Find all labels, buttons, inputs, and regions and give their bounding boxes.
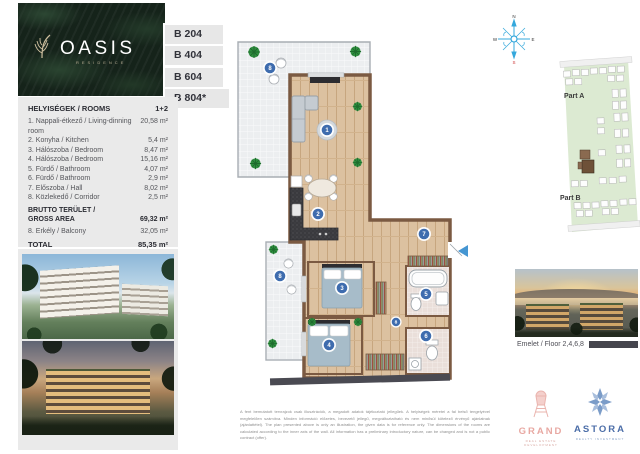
room-badge-hall: 7 bbox=[417, 227, 431, 241]
table-row: 7. Előszoba / Hall8,02 m² bbox=[28, 184, 168, 194]
snowflake-icon bbox=[587, 404, 613, 421]
astora-logo-tagline: REALTY INVESTMENT bbox=[570, 437, 630, 441]
building-block bbox=[40, 266, 119, 320]
disclaimer-text: A fent bemutatott tervrajzok csak illusz… bbox=[240, 409, 490, 442]
table-row: 6. Fürdő / Bathroom2,9 m² bbox=[28, 174, 168, 184]
balcony-chair bbox=[287, 285, 296, 294]
total-row: TOTAL 85,35 m² bbox=[28, 240, 168, 249]
unit-tag-b604: B 604 bbox=[165, 68, 223, 87]
building-rendering-sunset bbox=[22, 341, 174, 435]
building-block bbox=[526, 304, 569, 330]
table-row: 3. Hálószoba / Bedroom8,47 m² bbox=[28, 146, 168, 156]
rooms-header-right: 1+2 bbox=[155, 104, 168, 113]
room-badge-bathroom-a: 5 bbox=[419, 287, 433, 301]
svg-text:8: 8 bbox=[395, 320, 398, 326]
svg-text:N: N bbox=[512, 14, 515, 19]
table-row: 2. Konyha / Kitchen5,4 m² bbox=[28, 136, 168, 146]
brochure-page: OASIS RESIDENCE B 204 B 404 B 604 B 804*… bbox=[0, 0, 640, 454]
grand-logo-name: GRAND bbox=[511, 426, 571, 437]
room-badge-terrace: 8 bbox=[263, 61, 277, 75]
rooms-table: HELYISÉGEK / ROOMS 1+2 1. Nappali-étkező… bbox=[18, 97, 178, 247]
entrance-arrow-icon bbox=[458, 245, 468, 257]
leaf-icon bbox=[31, 33, 53, 64]
part-b-label: Part B bbox=[560, 195, 581, 202]
floor-caption: Emelet / Floor 2,4,6,8 bbox=[517, 340, 638, 349]
gross-area-row: BRUTTO TERÜLET /GROSS AREA 69,32 m² bbox=[28, 206, 168, 224]
wardrobe bbox=[366, 354, 404, 370]
room-badge-living: 1 bbox=[320, 123, 334, 137]
sink bbox=[436, 292, 448, 305]
svg-text:E: E bbox=[531, 37, 534, 42]
building-block bbox=[122, 283, 168, 315]
svg-text:W: W bbox=[493, 37, 498, 42]
room-badge-bedroom-a: 3 bbox=[335, 281, 349, 295]
part-a-label: Part A bbox=[564, 93, 584, 100]
building-block bbox=[580, 303, 623, 330]
building-rendering-day bbox=[22, 254, 174, 339]
rooms-table-header: HELYISÉGEK / ROOMS 1+2 bbox=[28, 104, 168, 113]
terrace-chair bbox=[276, 58, 286, 68]
toilet bbox=[426, 340, 438, 360]
terrace-chair bbox=[269, 74, 279, 84]
wardrobe bbox=[376, 282, 386, 314]
brand-name: OASIS bbox=[60, 38, 136, 60]
lake bbox=[515, 298, 638, 305]
table-row: 4. Hálószoba / Bedroom15,16 m² bbox=[28, 155, 168, 165]
brand-header: OASIS RESIDENCE bbox=[18, 3, 165, 96]
astora-logo-name: ASTORA bbox=[570, 424, 630, 435]
table-row: 1. Nappali-étkező / Living-dinning room2… bbox=[28, 117, 168, 136]
tv-cabinet bbox=[310, 77, 340, 83]
wardrobe bbox=[408, 256, 448, 266]
compass-icon: N E W S bbox=[492, 12, 536, 66]
room-badge-corridor: 8 bbox=[390, 316, 401, 327]
svg-text:S: S bbox=[512, 60, 515, 65]
building-block bbox=[46, 369, 149, 414]
table-row: 8. Közlekedő / Corridor2,5 m² bbox=[28, 193, 168, 203]
aerial-rendering bbox=[515, 269, 638, 337]
table-row: 5. Fürdő / Bathroom4,07 m² bbox=[28, 165, 168, 175]
room-badge-side-balcony: 8 bbox=[273, 269, 287, 283]
room-badge-bedroom-b: 4 bbox=[322, 338, 336, 352]
grand-logo: GRAND REAL ESTATE DEVELOPMENT bbox=[511, 387, 571, 447]
floor-caption-text: Emelet / Floor 2,4,6,8 bbox=[517, 341, 584, 348]
site-plan-map: Part A Part B bbox=[552, 56, 640, 234]
caption-bar bbox=[589, 341, 638, 348]
tower-icon bbox=[529, 406, 553, 423]
room-badge-bathroom-b: 6 bbox=[419, 329, 433, 343]
bathtub bbox=[409, 270, 447, 287]
room-badge-kitchen: 2 bbox=[311, 207, 325, 221]
brand-subtitle: RESIDENCE bbox=[76, 60, 126, 65]
grand-logo-tagline: REAL ESTATE DEVELOPMENT bbox=[511, 439, 571, 447]
balcony-chair bbox=[284, 259, 293, 268]
rooms-header-left: HELYISÉGEK / ROOMS bbox=[28, 104, 110, 113]
floor-plan: 1 2 3 4 5 6 7 bbox=[228, 28, 472, 404]
astora-logo: ASTORA REALTY INVESTMENT bbox=[570, 387, 630, 441]
mountains bbox=[515, 289, 638, 297]
unit-tag-b204: B 204 bbox=[165, 25, 223, 44]
unit-tag-b404: B 404 bbox=[165, 46, 223, 65]
washing-machine bbox=[409, 358, 421, 370]
balcony-row: 8. Erkély / Balcony 32,05 m² bbox=[28, 227, 168, 237]
